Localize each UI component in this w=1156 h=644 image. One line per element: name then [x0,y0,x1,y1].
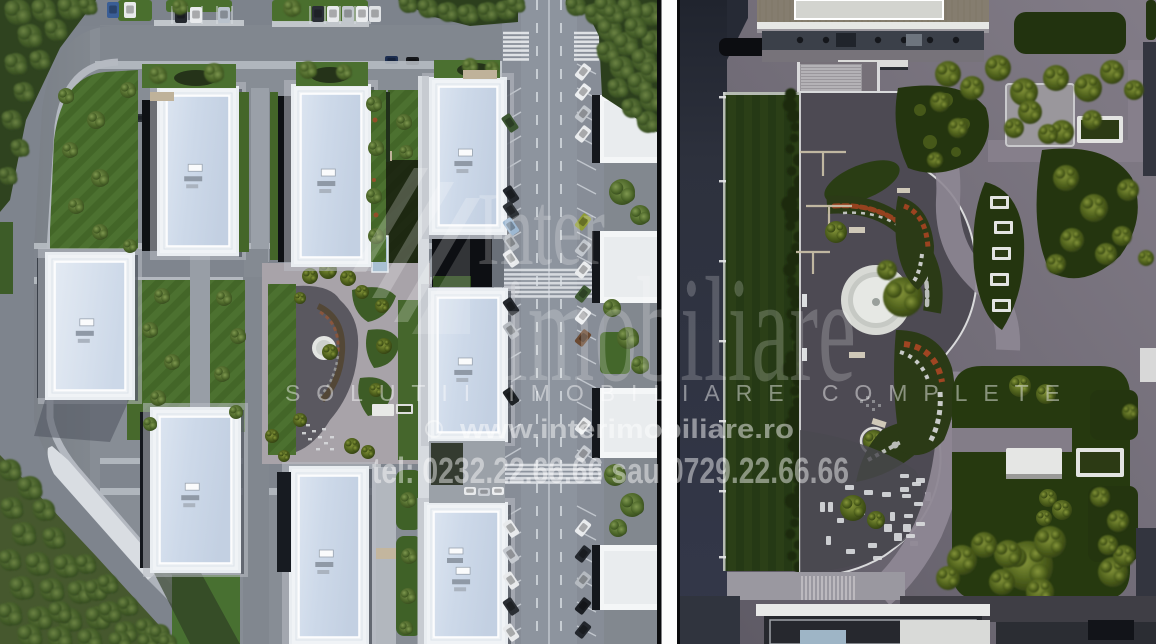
svg-text:www.interimobiliare.ro: www.interimobiliare.ro [459,414,794,444]
svg-text:tel: 0232.22.66.66 sau 0729.22: tel: 0232.22.66.66 sau 0729.22.66.66 [372,450,849,491]
